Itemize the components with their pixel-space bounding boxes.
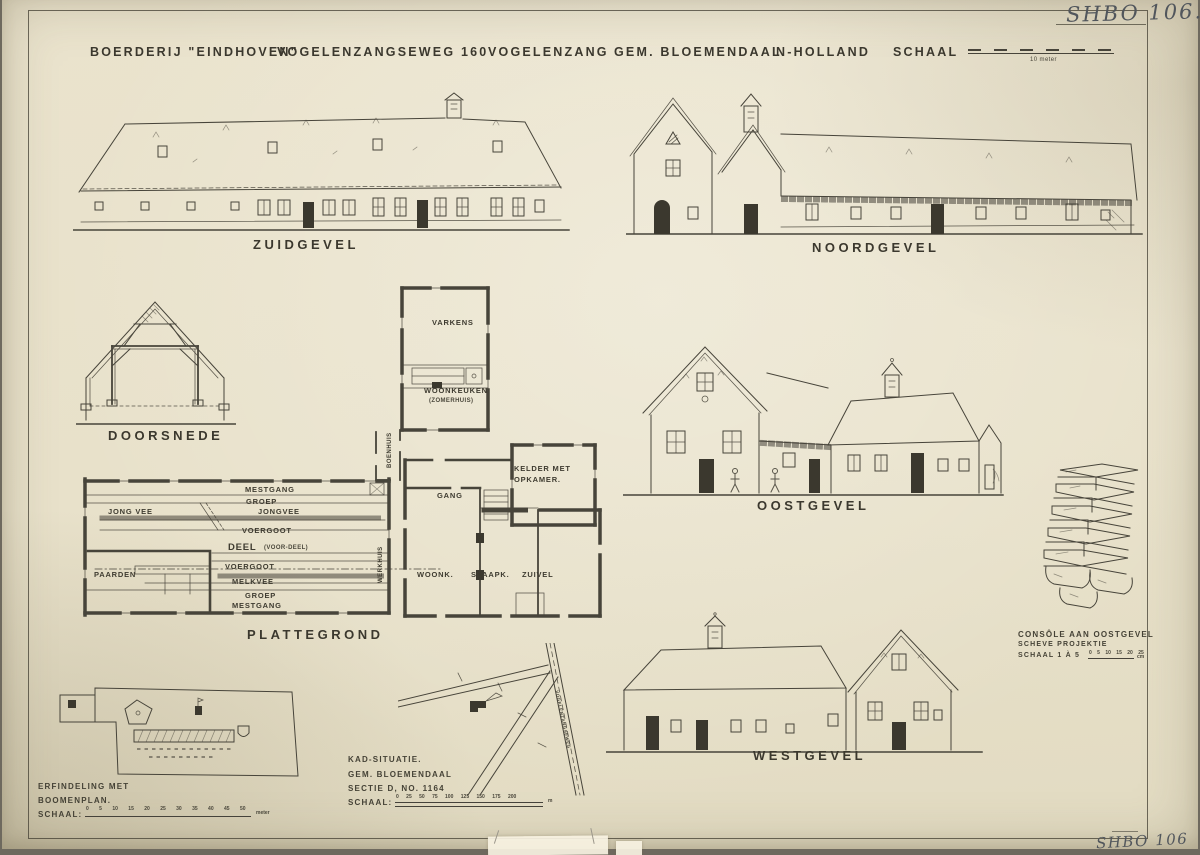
tape-piece [616,841,642,855]
erf-scale-word: SCHAAL: [38,810,82,819]
roof-turret [741,94,761,132]
roof-cupola [445,93,463,118]
kad-scale-word: SCHAAL: [348,798,392,807]
farm-footprint [470,693,502,712]
console-projection-note: SCHEVE PROJEKTIE [1018,641,1108,648]
kad-municipality: GEM. BLOEMENDAAL [348,770,452,779]
title-scale-caption: 10 meter [1030,57,1057,63]
tower-mark [195,698,203,715]
room-groep-top: GROEP [246,497,277,506]
room-varkens: VARKENS [432,318,474,327]
title-town: VOGELENZANG [488,45,609,59]
caption-westgevel: WESTGEVEL [753,748,866,763]
room-kelder-line2: OPKAMER. [514,475,561,484]
title-province: N-HOLLAND [776,45,870,59]
title-scale-word: SCHAAL [893,45,958,59]
noordgevel-elevation-drawing [626,92,1144,244]
room-woonk: WOONK. [417,570,453,579]
room-woonkeuken-sub: (ZOMERHUIS) [429,398,473,404]
archive-mark-top: SHBO 106. [1066,0,1200,27]
title-municipality: GEM. BLOEMENDAAL [614,45,782,59]
scanned-drawing-sheet: SHBO 106. SHBO 106 BOERDERIJ "EINDHOVEN"… [0,0,1200,855]
title-scale-bar [968,47,1114,54]
hatched-strip [134,730,234,742]
erf-title-line2: BOOMENPLAN. [38,796,111,805]
erf-scale-bar [85,816,251,817]
room-boenhuis: BOENHUIS [387,432,393,468]
room-deel-sub: (VOOR-DEEL) [264,545,308,551]
room-gang: GANG [437,491,463,500]
room-melkvee: MELKVEE [232,577,274,586]
erf-scale-ticks: 0 5 10 15 20 25 30 35 40 45 50 [86,806,246,812]
oostgevel-elevation-drawing [623,333,1005,508]
room-kelder-line1: KELDER MET [514,464,571,473]
caption-noordgevel: NOORDGEVEL [812,240,939,255]
kad-scale-bar [395,802,543,807]
caption-oostgevel: OOSTGEVEL [757,498,869,513]
erf-title-line1: ERFINDELING MET [38,782,129,791]
kad-title: KAD-SITUATIE. [348,755,422,764]
console-title: CONSÔLE AAN OOSTGEVEL [1018,630,1154,639]
room-jong-vee: JONG VEE [108,507,153,516]
gable-vent [666,132,680,144]
shield-mark [238,726,249,737]
room-jongvee: JONGVEE [258,507,300,516]
kad-scale-unit: m [548,798,552,804]
room-mestgang-bottom: MESTGANG [232,601,282,610]
roof-cupola [882,359,902,398]
console-scale-unit: cm [1137,654,1144,660]
kad-scale-ticks: 0 25 50 75 100 125 150 175 200 [396,794,516,800]
stamp-underline [1112,828,1138,832]
console-scale-bar [1088,658,1134,659]
room-paarden: PAARDEN [94,570,136,579]
room-werkhuis: WERKHUIS [378,546,384,583]
room-voergoot-mid: VOERGOOT [225,562,275,571]
room-deel: DEEL [228,542,257,553]
console-detail-drawing [1030,462,1146,624]
title-farm-name: BOERDERIJ "EINDHOVEN" [90,45,299,59]
room-voergoot-top: VOERGOOT [242,526,292,535]
room-slaapk: SLAAPK. [471,570,510,579]
room-mestgang-top: MESTGANG [245,485,295,494]
console-scale-ticks: 0 5 10 15 20 25 [1089,650,1144,656]
corbel-stones [1044,566,1132,608]
brick-courses [1044,464,1138,566]
human-figures [731,469,779,493]
tape-piece [488,835,608,855]
caption-plattegrond: PLATTEGROND [247,627,383,642]
title-street: VOGELENZANGSEWEG 160 [277,45,488,59]
caption-zuidgevel: ZUIDGEVEL [253,237,359,252]
roof-turret [705,613,725,648]
room-zuivel: ZUIVEL [522,570,553,579]
console-scale-note: SCHAAL 1 À 5 [1018,652,1080,659]
room-woonkeuken: WOONKEUKEN [424,386,488,395]
zuidgevel-elevation-drawing [73,92,571,242]
farm-roofplan-pentagon [125,700,152,724]
kad-parcel: SECTIE D, NO. 1164 [348,784,445,793]
room-groep-bottom: GROEP [245,591,276,600]
erf-scale-unit: meter [256,810,270,816]
westgevel-elevation-drawing [606,612,984,764]
